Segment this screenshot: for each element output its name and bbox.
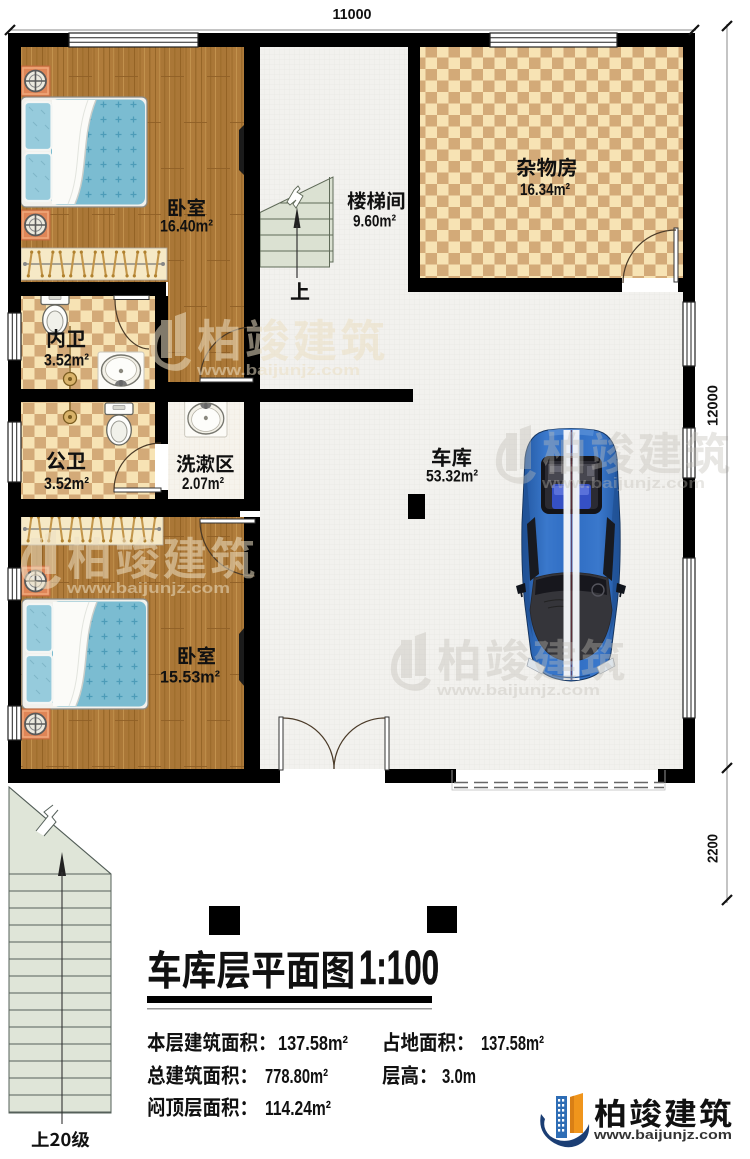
- svg-text:12000: 12000: [705, 385, 722, 426]
- svg-text:778.80m²: 778.80m²: [265, 1066, 328, 1088]
- svg-text:3.0m: 3.0m: [442, 1066, 476, 1088]
- svg-text:9.60m²: 9.60m²: [353, 213, 396, 231]
- svg-text:137.58m²: 137.58m²: [481, 1033, 544, 1055]
- svg-text:www.baijunjz.com: www.baijunjz.com: [593, 1127, 732, 1142]
- svg-text:16.40m²: 16.40m²: [160, 218, 213, 236]
- svg-text:53.32m²: 53.32m²: [426, 468, 478, 486]
- svg-text:16.34m²: 16.34m²: [520, 181, 570, 199]
- svg-text:11000: 11000: [333, 6, 372, 23]
- svg-text:1:100: 1:100: [359, 942, 439, 995]
- svg-text:www.baijunjz.com: www.baijunjz.com: [196, 363, 360, 379]
- svg-text:2200: 2200: [705, 834, 722, 863]
- svg-text:15.53m²: 15.53m²: [160, 669, 220, 687]
- svg-text:www.baijunjz.com: www.baijunjz.com: [541, 476, 705, 492]
- svg-text:3.52m²: 3.52m²: [44, 475, 89, 493]
- svg-text:2.07m²: 2.07m²: [182, 475, 224, 493]
- svg-text:www.baijunjz.com: www.baijunjz.com: [66, 581, 230, 597]
- svg-text:www.baijunjz.com: www.baijunjz.com: [436, 683, 600, 699]
- svg-text:3.52m²: 3.52m²: [44, 352, 89, 370]
- svg-text:137.58m²: 137.58m²: [278, 1033, 348, 1055]
- svg-text:114.24m²: 114.24m²: [265, 1098, 331, 1120]
